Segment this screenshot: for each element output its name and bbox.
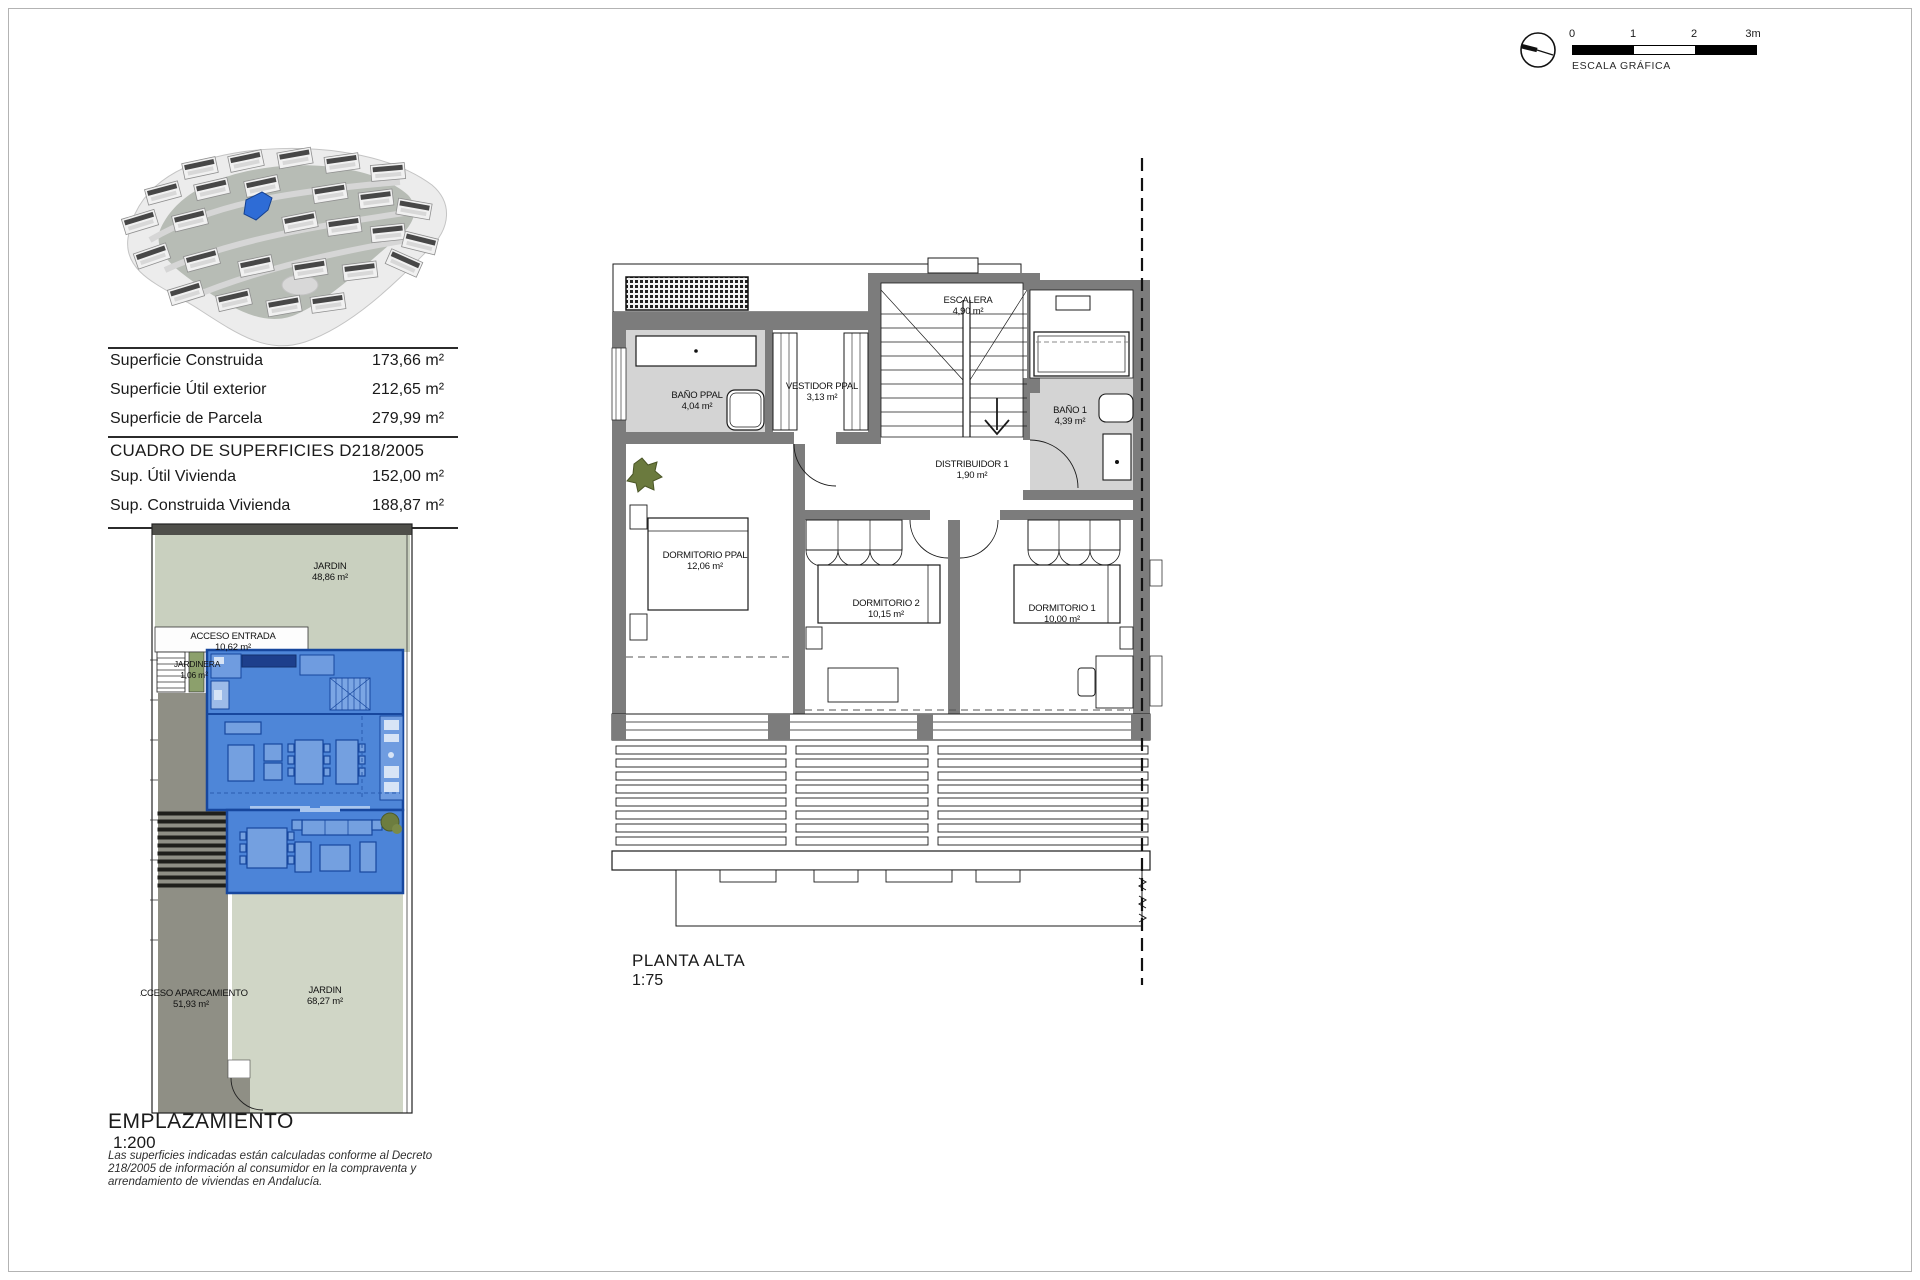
room-label-dorm-1: DORMITORIO 1: [1028, 603, 1095, 614]
row-value: 279,99 m²: [372, 410, 444, 428]
scale-bar-segment: [1573, 46, 1634, 54]
room-area-escalera: 4,90 m²: [953, 306, 984, 317]
floor-plan-title: PLANTA ALTA: [632, 951, 745, 971]
table-row: Superficie de Parcela 279,99 m²: [110, 410, 456, 434]
room-area-dorm-ppal: 12,06 m²: [687, 561, 723, 572]
aerial-key-plan: [100, 140, 470, 365]
site-plan: JARDIN 48,86 m² ACCESO ENTRADA 10,62 m² …: [140, 515, 425, 1140]
row-label: Sup. Útil Vivienda: [110, 468, 236, 485]
room-area-distribuidor: 1,90 m²: [957, 470, 988, 481]
entrance-access-area: 10,62 m²: [215, 642, 251, 653]
room-area-bano-1: 4,39 m²: [1055, 416, 1086, 427]
planter-area: 1,06 m²: [180, 670, 208, 680]
garden-top: [155, 535, 410, 627]
site-plan-title: EMPLAZAMIENTO: [108, 1110, 294, 1134]
row-label: Superficie de Parcela: [110, 410, 262, 427]
ground-floor-terrace: [227, 808, 403, 893]
scale-tick-1: 1: [1630, 28, 1636, 40]
row-value: 173,66 m²: [372, 352, 444, 370]
table-section-title: CUADRO DE SUPERFICIES D218/2005: [110, 441, 424, 461]
retaining-ticks: [150, 660, 158, 940]
terrace-beam: [612, 851, 1150, 870]
room-area-bano-ppal: 4,04 m²: [682, 401, 713, 412]
room-area-dorm-2: 10,15 m²: [868, 609, 904, 620]
row-value: 188,87 m²: [372, 497, 444, 515]
door-gap-d1: [960, 510, 980, 520]
scale-tick-3m: 3m: [1745, 28, 1760, 40]
parking-access-area: 51,93 m²: [173, 999, 209, 1010]
scale-bar-segment: [1634, 46, 1695, 54]
scale-bar: [1572, 45, 1757, 55]
room-label-dorm-ppal: DORMITORIO PPAL: [663, 550, 748, 561]
room-label-vestidor: VESTIDOR PPAL: [786, 381, 858, 392]
room-label-bano-1: BAÑO 1: [1053, 405, 1087, 416]
garden-top-area: 48,86 m²: [312, 572, 348, 583]
garden-top-label: JARDIN: [313, 561, 346, 572]
room-label-distribuidor: DISTRIBUIDOR 1: [935, 459, 1008, 470]
entrance-access-label: ACCESO ENTRADA: [190, 631, 276, 642]
plant: [627, 458, 662, 492]
skylight-grille: [626, 277, 748, 310]
window-band: [612, 714, 1150, 740]
table-rule-top: [108, 347, 458, 349]
room-label-escalera: ESCALERA: [943, 295, 993, 306]
room-area-dorm-1: 10,00 m²: [1044, 614, 1080, 625]
wardrobe-d1: [1028, 520, 1120, 566]
table-row: Sup. Útil Vivienda 152,00 m²: [110, 468, 456, 492]
room-label-dorm-2: DORMITORIO 2: [852, 598, 919, 609]
row-value: 212,65 m²: [372, 381, 444, 399]
upper-floor-plan: ESCALERA 4,90 m² BAÑO PPAL 4,04 m² VESTI…: [595, 150, 1195, 1010]
table-rule-mid: [108, 436, 458, 438]
table-row: Superficie Útil exterior 212,65 m²: [110, 381, 456, 405]
scale-bar-segment: [1695, 46, 1756, 54]
row-label: Superficie Construida: [110, 352, 263, 369]
scale-bar-label: ESCALA GRÁFICA: [1572, 60, 1671, 72]
site-top-wall: [152, 524, 412, 535]
surface-table: Superficie Construida 173,66 m² Superfic…: [108, 345, 458, 535]
door-gap-d2: [930, 510, 948, 520]
parking-access-label: ACCESO APARCAMIENTO: [140, 988, 248, 999]
floor-plan-scale: 1:75: [632, 972, 663, 990]
table-row: Superficie Construida 173,66 m²: [110, 352, 456, 376]
row-label: Sup. Construida Vivienda: [110, 497, 290, 514]
room-area-vestidor: 3,13 m²: [807, 392, 838, 403]
scale-tick-2: 2: [1691, 28, 1697, 40]
row-label: Superficie Útil exterior: [110, 381, 267, 398]
gate-recess: [228, 1060, 250, 1078]
door-swing-d1: [960, 520, 998, 558]
stair: [881, 258, 1027, 437]
room-label-bano-ppal: BAÑO PPAL: [671, 390, 722, 401]
scale-tick-0: 0: [1569, 28, 1575, 40]
garden-bottom-label: JARDIN: [308, 985, 341, 996]
ground-floor-footprint: [207, 650, 403, 811]
garden-bottom-area: 68,27 m²: [307, 996, 343, 1007]
row-value: 152,00 m²: [372, 468, 444, 486]
legal-disclaimer: Las superficies indicadas están calculad…: [108, 1150, 446, 1188]
pergola-slats: [616, 746, 1148, 845]
door-swing-d2: [910, 520, 948, 558]
door-gap-ppal: [794, 432, 836, 444]
garden-top-right: [308, 627, 410, 652]
wardrobe-d2: [806, 520, 902, 566]
planter-label: JARDINERA: [174, 659, 221, 669]
north-arrow-icon: [1514, 26, 1562, 74]
